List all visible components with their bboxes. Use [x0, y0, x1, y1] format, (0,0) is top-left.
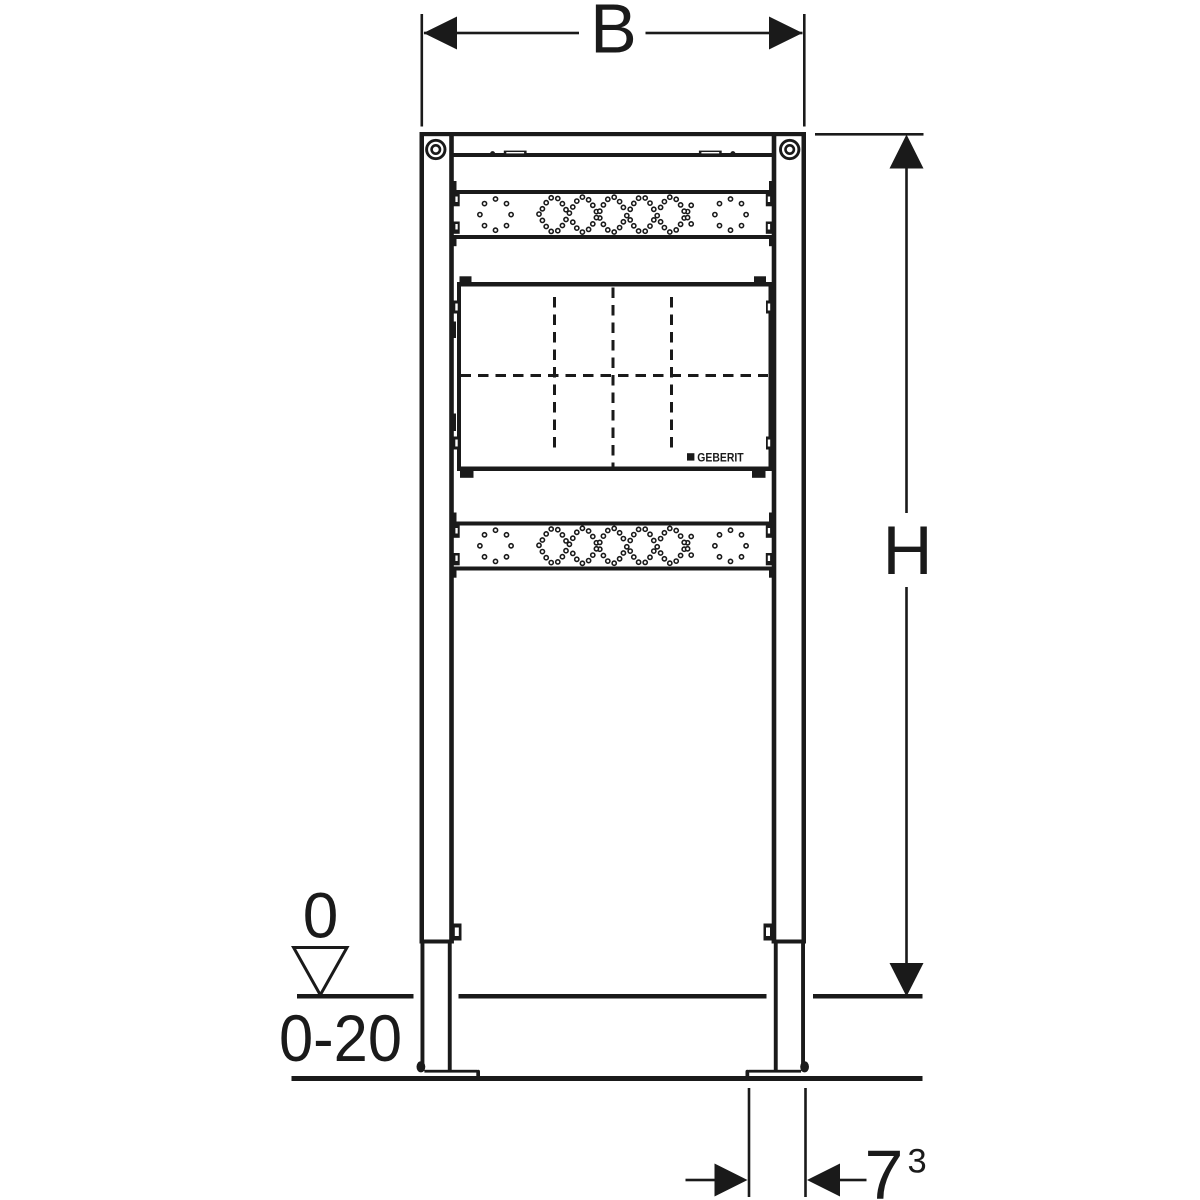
svg-text:0: 0 [303, 880, 339, 952]
svg-text:GEBERIT: GEBERIT [697, 450, 744, 464]
svg-text:0-20: 0-20 [279, 1001, 402, 1075]
svg-text:3: 3 [908, 1143, 927, 1181]
svg-text:H: H [883, 512, 933, 589]
svg-text:7: 7 [865, 1136, 904, 1200]
svg-text:B: B [590, 0, 637, 68]
